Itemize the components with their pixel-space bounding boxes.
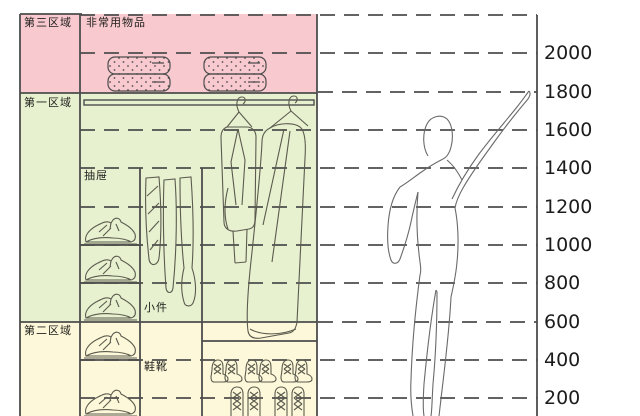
shoes-annotation: 鞋靴 [144,361,168,373]
zone3-label: 第三区域 [24,17,72,29]
zone-fills [20,14,317,416]
human-figure-icon [388,91,530,416]
tick-1000: 1000 [544,234,596,256]
tick-800: 800 [544,272,596,294]
tick-1400: 1400 [544,157,596,179]
small-items-annotation: 小件 [144,302,168,314]
tick-600: 600 [544,311,596,333]
tick-2000: 2000 [544,42,596,64]
zone1-label: 第一区域 [24,97,72,109]
tick-1800: 1800 [544,81,596,103]
tick-200: 200 [544,387,596,409]
tick-400: 400 [544,349,596,371]
zone2-label: 第二区域 [24,325,72,337]
tick-1200: 1200 [544,196,596,218]
drawer-annotation: 抽屉 [84,170,108,182]
zone3-annotation: 非常用物品 [86,17,146,29]
wardrobe-zone-diagram: 第三区域 非常用物品 第一区域 抽屉 小件 第二区域 鞋靴 2000 1800 … [0,0,640,416]
tick-1600: 1600 [544,119,596,141]
